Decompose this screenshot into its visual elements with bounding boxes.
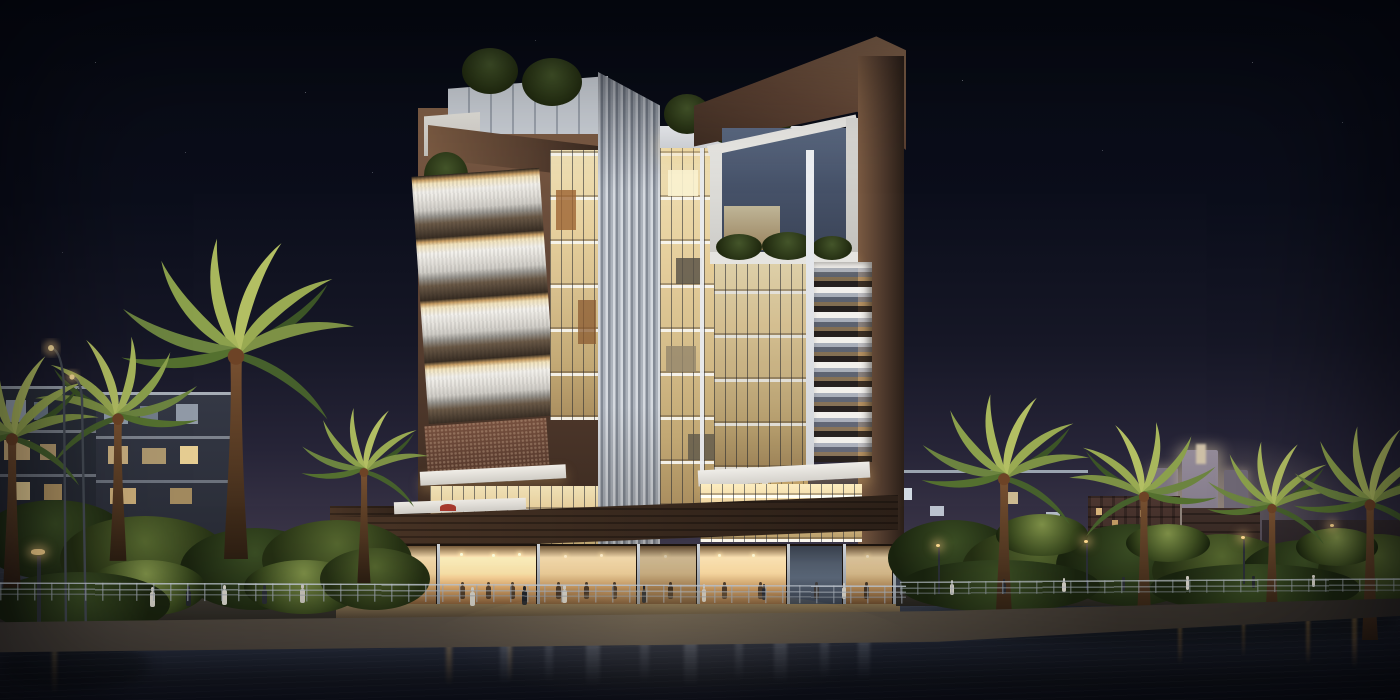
bollard-lamp-head [31,549,45,555]
promenade-railing [0,582,906,603]
lamp-head [936,544,940,547]
lamp-head [1084,540,1088,543]
lamp-head [1241,536,1245,539]
lamp-head [1330,524,1334,527]
waterfront-night-scene [0,0,1400,700]
